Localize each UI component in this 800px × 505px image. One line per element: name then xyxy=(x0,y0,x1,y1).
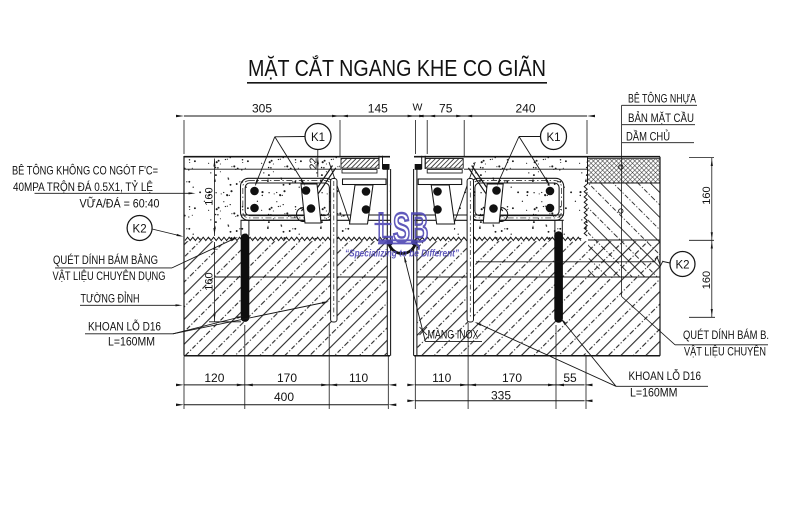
svg-text:VỮA/ĐÁ = 60:40: VỮA/ĐÁ = 60:40 xyxy=(80,196,160,211)
svg-text:BÊ TÔNG KHÔNG CO NGÓT F'C=: BÊ TÔNG KHÔNG CO NGÓT F'C= xyxy=(12,163,158,178)
svg-text:145: 145 xyxy=(368,102,388,116)
svg-text:“Specializing to be Different”: “Specializing to be Different” xyxy=(345,249,459,260)
svg-text:VẬT LIỆU CHUYÊN: VẬT LIỆU CHUYÊN xyxy=(684,344,766,359)
svg-text:QUÉT DÍNH BÁM B.: QUÉT DÍNH BÁM B. xyxy=(683,327,769,342)
svg-text:K1: K1 xyxy=(546,132,560,144)
svg-text:K2: K2 xyxy=(675,260,689,272)
svg-text:400: 400 xyxy=(274,390,294,404)
svg-text:160: 160 xyxy=(204,272,216,290)
svg-text:170: 170 xyxy=(277,371,297,385)
svg-text:335: 335 xyxy=(491,389,511,403)
svg-text:L=160MM: L=160MM xyxy=(630,386,678,400)
svg-text:KHOAN LỖ D16: KHOAN LỖ D16 xyxy=(629,368,702,383)
svg-text:22: 22 xyxy=(307,158,319,170)
svg-text:MÀNG INOX: MÀNG INOX xyxy=(428,327,479,342)
svg-text:160: 160 xyxy=(204,187,216,205)
svg-text:110: 110 xyxy=(432,371,451,385)
svg-text:K1: K1 xyxy=(311,132,325,144)
svg-text:W: W xyxy=(413,102,423,114)
svg-text:75: 75 xyxy=(439,102,453,116)
svg-text:BẢN MẶT CẦU: BẢN MẶT CẦU xyxy=(628,110,694,125)
svg-text:160: 160 xyxy=(701,271,713,289)
svg-text:305: 305 xyxy=(252,102,272,116)
svg-text:L=160MM: L=160MM xyxy=(108,335,155,349)
svg-text:KHOAN LỖ D16: KHOAN LỖ D16 xyxy=(88,319,161,334)
svg-text:VẬT LIỆU CHUYÊN DỤNG: VẬT LIỆU CHUYÊN DỤNG xyxy=(53,268,166,283)
svg-text:BÊ TÔNG NHỰA: BÊ TÔNG NHỰA xyxy=(628,91,696,106)
svg-text:160: 160 xyxy=(701,186,713,204)
svg-text:DẦM CHỦ: DẦM CHỦ xyxy=(626,129,670,144)
svg-text:TƯỜNG ĐỈNH: TƯỜNG ĐỈNH xyxy=(81,291,140,306)
svg-text:110: 110 xyxy=(349,371,368,385)
svg-text:55: 55 xyxy=(563,371,577,385)
svg-text:K2: K2 xyxy=(133,224,147,236)
svg-text:QUÉT DÍNH BÁM BẰNG: QUÉT DÍNH BÁM BẰNG xyxy=(53,252,158,267)
svg-text:170: 170 xyxy=(502,371,522,385)
svg-text:MẶT CẮT NGANG KHE CO GIÃN: MẶT CẮT NGANG KHE CO GIÃN xyxy=(248,54,546,81)
svg-text:120: 120 xyxy=(204,371,224,385)
svg-text:240: 240 xyxy=(515,102,535,116)
svg-text:40MPA TRỘN ĐÁ 0.5X1, TỶ LỆ: 40MPA TRỘN ĐÁ 0.5X1, TỶ LỆ xyxy=(13,179,153,194)
